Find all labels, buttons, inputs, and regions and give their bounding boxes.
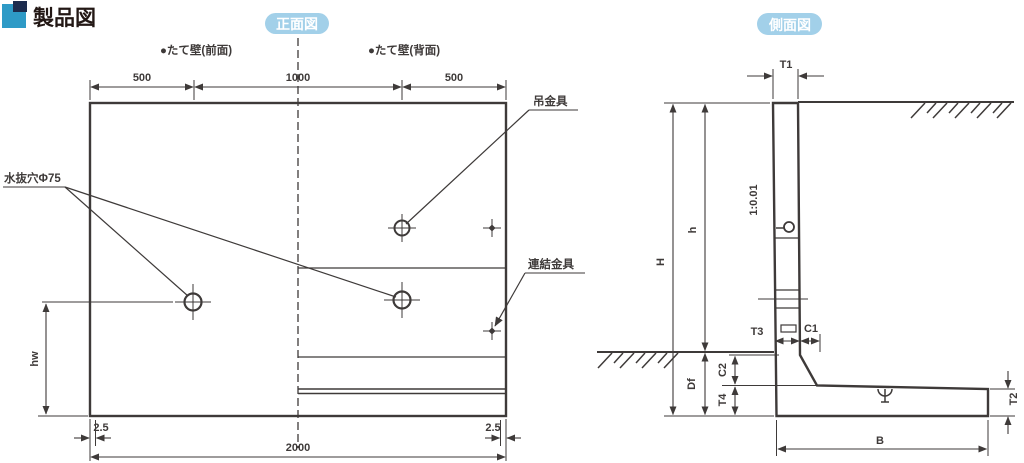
dim-T2: T2 <box>990 371 1020 434</box>
joint-marker-lower <box>483 322 501 340</box>
dim-C2-label: C2 <box>717 363 729 377</box>
dim-B: B <box>777 420 989 456</box>
side-wall-profile <box>773 103 988 416</box>
front-view-badge: 正面図 <box>265 13 329 34</box>
wall-front-label: ●たて壁(前面) <box>160 43 232 57</box>
dim-h-label: h <box>687 226 699 233</box>
drain-hole-right <box>384 282 420 318</box>
side-view: 1:0.01 T1 H h Df <box>597 59 1020 456</box>
connecting-hw-label: 連結金具 <box>528 257 574 271</box>
ground-front <box>597 352 774 368</box>
slope-label: 1:0.01 <box>748 184 760 215</box>
dim-Df-label: Df <box>686 378 698 390</box>
dim-500-right: 500 <box>445 72 463 84</box>
side-connector-recess <box>781 325 796 332</box>
lifting-insert-side <box>776 222 794 232</box>
side-view-badge: 側面図 <box>757 13 822 35</box>
dim-T3-label: T3 <box>751 326 764 338</box>
dim-T4-label: T4 <box>717 393 729 407</box>
wall-back-label: ●たて壁(背面) <box>368 43 440 57</box>
dim-T1-label: T1 <box>780 59 793 71</box>
dim-H: H <box>655 103 774 416</box>
dim-2000: 2000 <box>286 442 310 454</box>
joint-marker-upper <box>483 219 501 237</box>
dim-B-label: B <box>876 435 884 447</box>
lifting-hw-label: 吊金具 <box>533 94 568 108</box>
side-view-badge-label: 側面図 <box>768 17 811 33</box>
dim-T1: T1 <box>747 59 824 99</box>
dim-C1: C1 <box>801 323 820 352</box>
dim-hw: hw <box>29 302 173 416</box>
page-header: 製品図 <box>2 1 96 30</box>
ground-back <box>798 102 1014 118</box>
drain-hole-label: 水抜穴Φ75 <box>4 171 61 185</box>
dim-C1-label: C1 <box>804 323 818 335</box>
page-title: 製品図 <box>32 6 96 30</box>
lifting-hw-callout: 吊金具 <box>406 94 578 224</box>
front-view-badge-label: 正面図 <box>276 16 318 32</box>
product-drawing-canvas: 製品図 正面図 側面図 ●たて壁(前面) ●たて壁(背面) 500 1000 <box>0 0 1024 463</box>
dim-H-label: H <box>655 258 667 266</box>
connecting-hw-callout: 連結金具 <box>495 257 585 326</box>
dim-500-left: 500 <box>133 72 151 84</box>
dim-25-left: 2.5 <box>93 422 108 434</box>
dim-C2: C2 <box>717 355 816 386</box>
drain-hole-callout: 水抜穴Φ75 <box>3 171 396 297</box>
base-anchor-symbol <box>878 389 892 402</box>
dim-hw-label: hw <box>29 351 41 367</box>
ground-front-hatch <box>598 353 678 368</box>
dim-1000: 1000 <box>286 72 310 84</box>
dim-h: h <box>687 105 705 351</box>
dim-25-right: 2.5 <box>485 422 500 434</box>
dim-T4: T4 <box>717 387 735 415</box>
dim-T2-label: T2 <box>1008 393 1020 406</box>
ground-back-hatch <box>911 103 1011 118</box>
logo-navy-square <box>13 1 27 12</box>
dim-Df: Df <box>686 354 705 415</box>
front-view: ●たて壁(前面) ●たて壁(背面) 500 1000 500 hw <box>3 38 585 461</box>
